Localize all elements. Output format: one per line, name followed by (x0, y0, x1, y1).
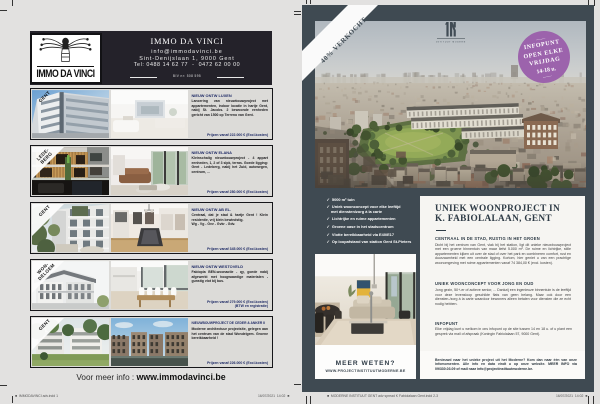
svg-text:INSTITUUT MODERNE: INSTITUUT MODERNE (436, 42, 466, 44)
